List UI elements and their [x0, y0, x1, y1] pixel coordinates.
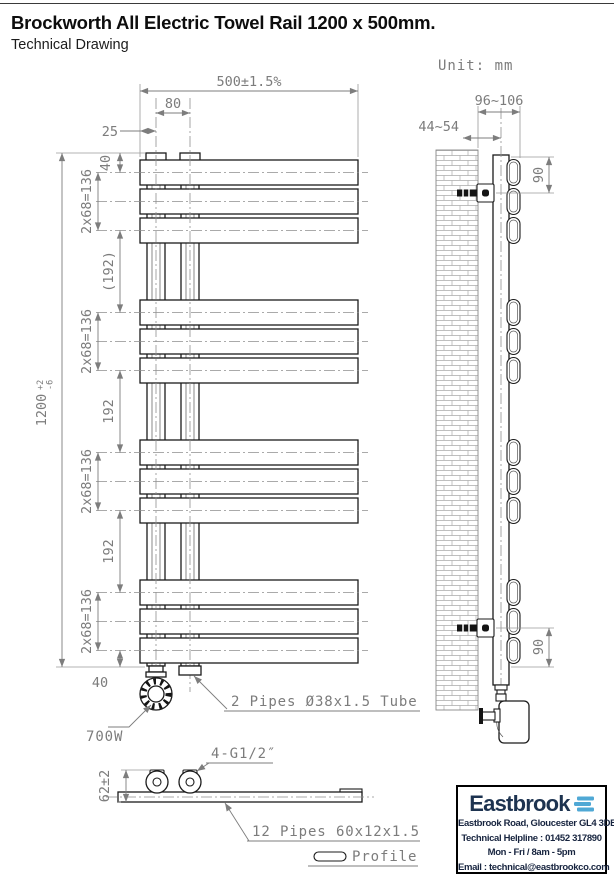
dim-wall-gap: 44~54 — [418, 119, 459, 135]
towel-rail-technical-drawing: 500±1.5% 80 25 40 1200 +2 -6 2x68= — [0, 0, 614, 878]
dim-bar-group-2: 2x68=136 — [79, 309, 95, 374]
brand-helpline: Technical Helpline : 01452 317890 — [458, 832, 605, 847]
towel-bars — [96, 160, 368, 663]
side-view: 96~106 44~54 90 90 — [418, 93, 554, 743]
pipes-tube-label: 2 Pipes Ø38x1.5 Tube — [231, 694, 418, 710]
dim-height-tol-plus: +2 — [36, 380, 46, 390]
dim-depth: 96~106 — [475, 93, 524, 109]
dim-gap-2: 192 — [101, 539, 117, 563]
manufacturer-info-box: Eastbrook Eastbrook Road, Gloucester GL4… — [456, 785, 607, 874]
dim-bottom-offset: 40 — [92, 675, 108, 691]
dim-top-offset: 40 — [98, 155, 114, 171]
profile-label: Profile — [352, 849, 417, 865]
section-pipes-label: 12 Pipes 60x12x1.5 — [252, 824, 420, 840]
dim-gap-ref: (192) — [101, 251, 117, 292]
eastbrook-logo: Eastbrook — [458, 791, 605, 817]
section-view: 62±2 4-G1/2″ 12 Pipes 60x12x1.5 Profile — [97, 746, 420, 866]
dim-bracket-bottom: 90 — [531, 639, 547, 655]
dim-tube-spacing: 80 — [165, 96, 181, 112]
brand-email: Email : technical@eastbrookco.com — [458, 861, 605, 876]
front-view: 500±1.5% 80 25 40 1200 +2 -6 2x68= — [34, 74, 420, 745]
pipe-connections — [146, 770, 201, 793]
dim-bar-group-1: 2x68=136 — [79, 169, 95, 234]
section-view-dimensions: 62±2 4-G1/2″ 12 Pipes 60x12x1.5 Profile — [97, 746, 420, 866]
side-electric-element — [479, 685, 529, 743]
dim-gap-1: 192 — [101, 399, 117, 423]
technical-drawing-page: Brockworth All Electric Towel Rail 1200 … — [0, 0, 614, 878]
dim-height-group: 1200 +2 -6 — [34, 380, 56, 427]
dim-width: 500±1.5% — [216, 74, 281, 90]
blanking-plug — [179, 666, 201, 675]
dim-tube-offset: 25 — [102, 124, 118, 140]
dim-bracket-top: 90 — [531, 167, 547, 183]
brand-address: Eastbrook Road, Gloucester GL4 3DB — [458, 817, 605, 832]
connections-label: 4-G1/2″ — [211, 746, 276, 762]
profile-shape-icon — [314, 852, 346, 861]
power-label: 700W — [86, 729, 123, 745]
dim-bar-group-3: 2x68=136 — [79, 449, 95, 514]
dim-height-tol-minus: -6 — [46, 380, 56, 390]
dim-section-height: 62±2 — [97, 770, 113, 803]
brand-hours: Mon - Fri / 8am - 5pm — [458, 846, 605, 861]
eastbrook-waves-icon — [574, 796, 594, 813]
dim-bar-group-4: 2x68=136 — [79, 589, 95, 654]
dim-height: 1200 — [34, 394, 50, 427]
electric-element — [140, 666, 172, 710]
brand-name: Eastbrook — [469, 791, 569, 817]
